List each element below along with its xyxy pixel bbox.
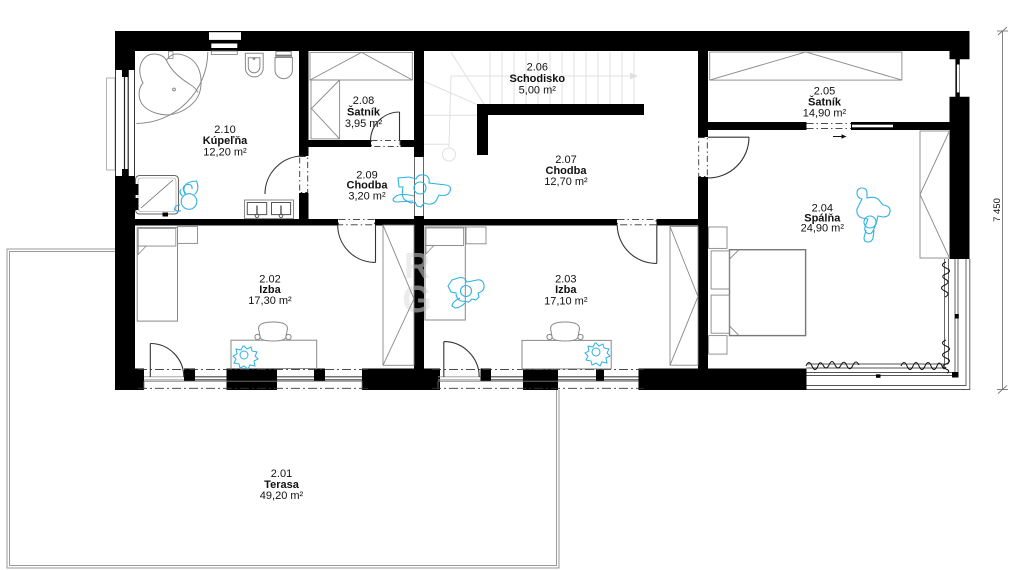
svg-text:24,90 m²: 24,90 m² (801, 223, 845, 235)
svg-text:2.06: 2.06 (527, 62, 548, 74)
svg-text:Kúpeľňa: Kúpeľňa (203, 135, 248, 147)
svg-text:17,10 m²: 17,10 m² (544, 296, 588, 308)
svg-text:Izba: Izba (555, 284, 577, 296)
svg-text:2.10: 2.10 (214, 124, 235, 136)
svg-text:17,30 m²: 17,30 m² (248, 295, 292, 307)
svg-text:3,20 m²: 3,20 m² (348, 191, 386, 203)
svg-text:3,95 m²: 3,95 m² (345, 118, 383, 130)
svg-text:2.08: 2.08 (353, 95, 374, 107)
svg-text:12,20 m²: 12,20 m² (203, 147, 247, 159)
svg-text:49,20 m²: 49,20 m² (260, 490, 304, 502)
svg-text:12,70 m²: 12,70 m² (544, 176, 588, 188)
svg-text:Šatník: Šatník (347, 106, 381, 119)
svg-text:7 450: 7 450 (992, 198, 1003, 222)
svg-text:5,00 m²: 5,00 m² (519, 85, 557, 97)
svg-text:14,90 m²: 14,90 m² (803, 108, 847, 120)
svg-text:Schodisko: Schodisko (509, 73, 565, 85)
